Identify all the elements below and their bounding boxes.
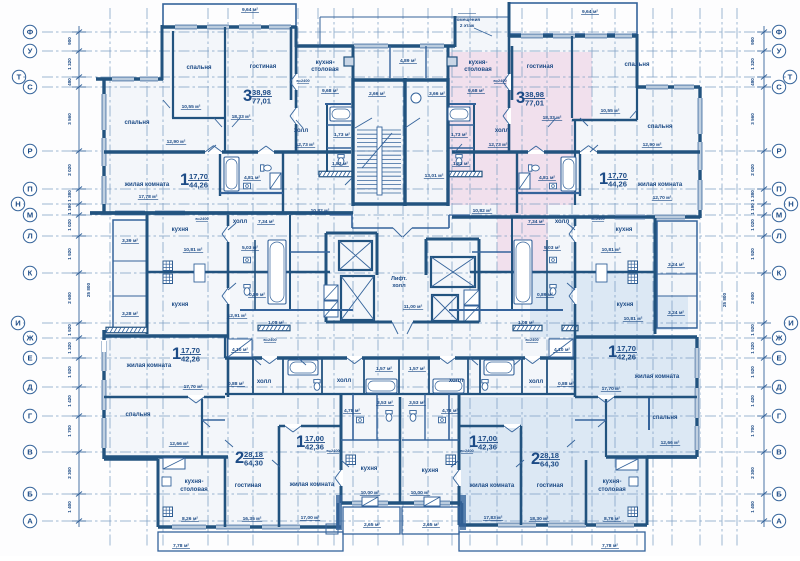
svg-text:Г: Г	[777, 412, 782, 421]
svg-text:2 600: 2 600	[67, 292, 72, 304]
svg-text:К: К	[777, 269, 782, 278]
svg-text:в=2400: в=2400	[460, 448, 473, 453]
svg-text:1 920: 1 920	[67, 324, 72, 336]
svg-text:жилая комната: жилая комната	[637, 182, 683, 188]
svg-text:77,01: 77,01	[252, 97, 272, 106]
svg-text:Г: Г	[28, 412, 33, 421]
svg-text:И: И	[15, 319, 20, 328]
svg-text:900: 900	[750, 37, 755, 45]
svg-text:кухня: кухня	[617, 302, 634, 308]
svg-text:кухня-: кухня-	[603, 479, 622, 485]
svg-text:1 920: 1 920	[750, 248, 755, 260]
svg-text:жилая комната: жилая комната	[124, 182, 170, 188]
svg-text:К: К	[28, 269, 33, 278]
svg-text:холл: холл	[337, 378, 352, 384]
svg-text:спальня: спальня	[125, 120, 150, 126]
svg-text:С: С	[776, 83, 782, 92]
svg-text:42,36: 42,36	[305, 443, 324, 452]
svg-text:М: М	[27, 211, 33, 220]
svg-text:1 400: 1 400	[750, 501, 755, 513]
svg-text:2: 2	[531, 450, 540, 468]
svg-text:холл: холл	[529, 379, 544, 385]
svg-text:1 320: 1 320	[750, 58, 755, 70]
svg-text:1 190: 1 190	[750, 203, 755, 215]
svg-text:1: 1	[608, 343, 617, 361]
svg-text:жилая комната: жилая комната	[469, 483, 515, 489]
svg-text:кухня: кухня	[616, 227, 633, 233]
svg-text:2 этаж: 2 этаж	[460, 23, 475, 28]
svg-text:спальня: спальня	[625, 62, 650, 68]
svg-text:жилая комната: жилая комната	[289, 482, 335, 488]
svg-text:1 400: 1 400	[67, 501, 72, 513]
svg-text:Р: Р	[27, 147, 32, 156]
svg-text:Л: Л	[776, 232, 781, 241]
svg-text:900: 900	[67, 37, 72, 45]
svg-text:1 320: 1 320	[750, 342, 755, 354]
svg-text:гостиная: гостиная	[527, 64, 554, 70]
svg-text:кухня: кухня	[172, 302, 189, 308]
svg-text:Ж: Ж	[775, 334, 783, 343]
svg-text:П: П	[776, 185, 781, 194]
svg-text:столовая: столовая	[311, 67, 339, 73]
svg-text:2 020: 2 020	[750, 164, 755, 176]
svg-text:1 920: 1 920	[67, 248, 72, 260]
svg-text:Лифт.: Лифт.	[391, 275, 407, 282]
svg-text:Р: Р	[776, 147, 781, 156]
svg-text:1: 1	[172, 345, 181, 363]
svg-text:холл: холл	[449, 378, 464, 384]
svg-text:1 420: 1 420	[750, 395, 755, 407]
svg-text:2 020: 2 020	[67, 164, 72, 176]
svg-text:холл: холл	[495, 128, 510, 134]
svg-text:Ф: Ф	[27, 28, 34, 37]
svg-text:1 320: 1 320	[67, 342, 72, 354]
svg-text:в=2400: в=2400	[591, 216, 604, 221]
svg-text:Д: Д	[27, 383, 33, 392]
svg-text:в=2400: в=2400	[525, 337, 538, 342]
svg-text:столовая: столовая	[464, 67, 492, 73]
svg-text:У: У	[777, 47, 782, 56]
svg-text:В: В	[776, 448, 782, 457]
svg-text:жилая комната: жилая комната	[126, 363, 172, 369]
svg-text:3 560: 3 560	[750, 113, 755, 125]
svg-text:кухня: кухня	[422, 468, 439, 474]
svg-text:холл: холл	[294, 128, 309, 134]
svg-text:2: 2	[235, 449, 244, 467]
svg-text:3 560: 3 560	[67, 113, 72, 125]
svg-text:1 380: 1 380	[67, 190, 72, 202]
svg-text:А: А	[27, 517, 33, 526]
svg-text:помещения: помещения	[454, 17, 481, 22]
svg-text:Т: Т	[17, 73, 22, 82]
svg-text:77,01: 77,01	[525, 99, 545, 108]
svg-text:А: А	[776, 517, 782, 526]
svg-text:спальня: спальня	[648, 124, 673, 130]
svg-text:И: И	[788, 319, 793, 328]
svg-text:1 700: 1 700	[750, 425, 755, 437]
svg-text:Л: Л	[27, 232, 32, 241]
svg-text:1 920: 1 920	[750, 324, 755, 336]
svg-text:холл: холл	[555, 219, 570, 225]
svg-text:1: 1	[296, 433, 305, 451]
svg-text:1 380: 1 380	[750, 190, 755, 202]
svg-text:Н: Н	[15, 200, 20, 209]
svg-text:жилая комната: жилая комната	[634, 374, 680, 380]
svg-text:42,36: 42,36	[478, 443, 497, 452]
svg-text:2 300: 2 300	[67, 467, 72, 479]
svg-text:холл: холл	[257, 379, 272, 385]
svg-text:Ж: Ж	[26, 334, 34, 343]
svg-text:Ф: Ф	[776, 28, 783, 37]
svg-text:480: 480	[750, 78, 755, 86]
svg-text:в=2400: в=2400	[326, 448, 339, 453]
svg-text:1 320: 1 320	[67, 58, 72, 70]
svg-text:С: С	[27, 83, 33, 92]
svg-text:Н: Н	[788, 200, 793, 209]
svg-text:1 420: 1 420	[67, 395, 72, 407]
svg-text:1 020: 1 020	[750, 219, 755, 231]
svg-text:480: 480	[67, 78, 72, 86]
svg-text:в=2400: в=2400	[296, 78, 309, 83]
svg-text:Б: Б	[27, 490, 33, 499]
svg-text:1 190: 1 190	[67, 203, 72, 215]
svg-text:гостиная: гостиная	[537, 483, 564, 489]
svg-text:42,26: 42,26	[181, 355, 200, 364]
svg-text:44,26: 44,26	[189, 181, 208, 190]
svg-text:У: У	[28, 47, 33, 56]
svg-text:В: В	[27, 448, 33, 457]
svg-text:столовая: столовая	[180, 487, 208, 493]
svg-text:1 700: 1 700	[67, 425, 72, 437]
svg-text:3: 3	[516, 89, 525, 107]
svg-text:64,30: 64,30	[540, 460, 559, 469]
svg-text:64,30: 64,30	[244, 459, 263, 468]
svg-text:кухня: кухня	[361, 466, 378, 472]
svg-text:Т: Т	[788, 73, 793, 82]
svg-text:гостиная: гостиная	[235, 483, 262, 489]
svg-text:1: 1	[180, 171, 189, 189]
svg-text:25 800: 25 800	[86, 283, 91, 297]
svg-text:Д: Д	[776, 383, 782, 392]
svg-text:столовая: столовая	[598, 487, 626, 493]
svg-text:1 920: 1 920	[67, 366, 72, 378]
svg-text:Е: Е	[27, 354, 32, 363]
svg-text:2 600: 2 600	[750, 292, 755, 304]
svg-text:1 020: 1 020	[67, 219, 72, 231]
svg-text:холл: холл	[392, 283, 406, 289]
svg-text:Е: Е	[776, 354, 781, 363]
svg-text:спальня: спальня	[187, 65, 212, 71]
svg-text:1 920: 1 920	[750, 366, 755, 378]
svg-text:44,26: 44,26	[608, 180, 627, 189]
svg-text:3: 3	[243, 87, 252, 105]
svg-text:в=2400: в=2400	[195, 216, 208, 221]
svg-text:П: П	[27, 185, 32, 194]
svg-text:кухня-: кухня-	[185, 479, 204, 485]
svg-text:спальня: спальня	[653, 415, 678, 421]
svg-text:в=2400: в=2400	[263, 337, 276, 342]
svg-text:кухня-: кухня-	[316, 60, 335, 66]
svg-text:25 800: 25 800	[722, 293, 727, 307]
svg-text:кухня-: кухня-	[469, 60, 488, 66]
svg-text:2 300: 2 300	[750, 467, 755, 479]
svg-text:М: М	[776, 211, 782, 220]
svg-text:гостиная: гостиная	[250, 64, 277, 70]
svg-text:1: 1	[599, 170, 608, 188]
svg-text:спальня: спальня	[126, 412, 151, 418]
svg-text:в=2400: в=2400	[493, 78, 506, 83]
svg-text:кухня: кухня	[172, 227, 189, 233]
svg-text:Б: Б	[776, 490, 782, 499]
svg-text:42,26: 42,26	[617, 353, 636, 362]
